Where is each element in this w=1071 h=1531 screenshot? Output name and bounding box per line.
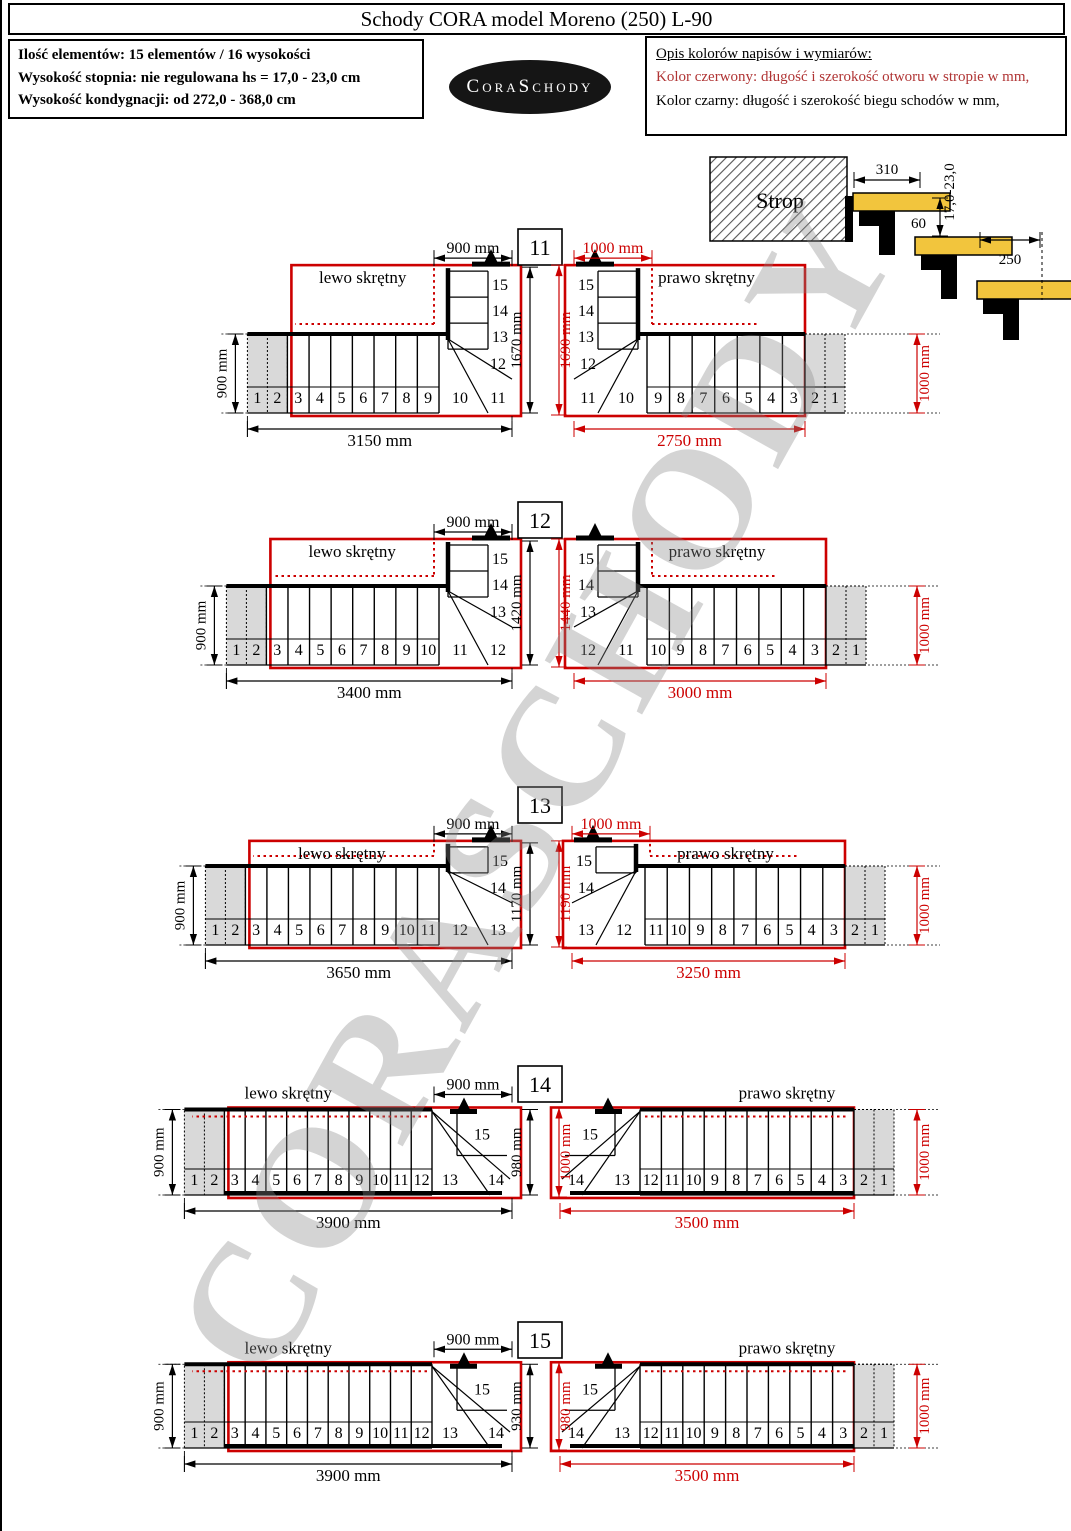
svg-text:14: 14 [492, 303, 508, 320]
svg-text:1000 mm: 1000 mm [558, 1123, 574, 1180]
svg-text:3400 mm: 3400 mm [337, 683, 402, 702]
svg-text:lewo skrętny: lewo skrętny [298, 844, 386, 863]
strop-section: Strop31017,0-23,060250 [710, 157, 1071, 340]
variant-15-right-diagram: 121211109876543151314prawo skrętny1000 m… [551, 1338, 940, 1485]
svg-text:12: 12 [529, 508, 551, 533]
svg-text:250: 250 [999, 252, 1022, 268]
svg-text:lewo skrętny: lewo skrętny [245, 1338, 333, 1357]
svg-text:13: 13 [529, 793, 551, 818]
svg-text:13: 13 [578, 922, 594, 939]
svg-text:5: 5 [797, 1172, 805, 1189]
svg-text:4: 4 [316, 390, 324, 407]
variant-13-right-diagram: 121110987654315141213prawo skrętny1000 m… [563, 816, 940, 982]
svg-text:4: 4 [818, 1172, 826, 1189]
svg-text:9: 9 [355, 1172, 363, 1189]
svg-text:900 mm: 900 mm [172, 880, 188, 930]
svg-text:15: 15 [492, 551, 508, 568]
svg-text:8: 8 [719, 922, 727, 939]
svg-text:5: 5 [272, 1425, 280, 1442]
svg-text:3: 3 [273, 642, 281, 659]
svg-text:11: 11 [452, 642, 467, 659]
svg-text:14: 14 [492, 577, 508, 594]
svg-text:6: 6 [775, 1172, 783, 1189]
svg-text:prawo skrętny: prawo skrętny [739, 1338, 836, 1357]
svg-text:3000 mm: 3000 mm [668, 683, 733, 702]
svg-text:2: 2 [851, 922, 859, 939]
svg-text:3250 mm: 3250 mm [676, 963, 741, 982]
svg-text:1190 mm: 1190 mm [558, 865, 574, 922]
svg-text:2: 2 [832, 642, 840, 659]
svg-text:10: 10 [650, 642, 666, 659]
svg-text:7: 7 [741, 922, 749, 939]
svg-text:900 mm: 900 mm [151, 1381, 167, 1431]
svg-text:11: 11 [664, 1425, 679, 1442]
variant-14-mid-dims: 980 mm1000 mm [509, 1108, 574, 1198]
svg-text:3: 3 [811, 642, 819, 659]
svg-text:11: 11 [393, 1172, 408, 1189]
svg-text:5: 5 [785, 922, 793, 939]
svg-text:1: 1 [190, 1425, 198, 1442]
title-bar: Schody CORA model Moreno (250) L-90 [8, 3, 1065, 35]
svg-text:12: 12 [643, 1172, 659, 1189]
svg-text:7: 7 [754, 1425, 762, 1442]
svg-text:1000 mm: 1000 mm [917, 1377, 933, 1434]
svg-text:13: 13 [442, 1172, 458, 1189]
svg-text:6: 6 [359, 390, 367, 407]
svg-text:7: 7 [699, 390, 707, 407]
variant-14-right-diagram: 121211109876543151314prawo skrętny1000 m… [551, 1084, 940, 1233]
svg-text:7: 7 [338, 922, 346, 939]
svg-text:11: 11 [529, 235, 550, 260]
svg-text:1: 1 [211, 922, 219, 939]
svg-text:15: 15 [492, 277, 508, 294]
svg-text:15: 15 [578, 277, 594, 294]
legend-box: Opis kolorów napisów i wymiarów: Kolor c… [645, 36, 1067, 136]
svg-text:2: 2 [860, 1172, 868, 1189]
svg-text:900 mm: 900 mm [447, 514, 500, 531]
svg-text:900 mm: 900 mm [447, 1331, 500, 1348]
svg-text:900 mm: 900 mm [447, 1077, 500, 1094]
svg-text:900 mm: 900 mm [447, 816, 500, 833]
svg-text:1: 1 [880, 1425, 888, 1442]
svg-text:5: 5 [797, 1425, 805, 1442]
svg-text:14: 14 [490, 880, 506, 897]
svg-text:8: 8 [732, 1425, 740, 1442]
svg-text:7: 7 [754, 1172, 762, 1189]
variant-13-row: 121110987654315141213lewo skrętny900 mm9… [2, 783, 1071, 1009]
svg-text:5: 5 [338, 390, 346, 407]
svg-text:10: 10 [399, 922, 415, 939]
page-title: Schody CORA model Moreno (250) L-90 [361, 7, 713, 31]
svg-text:60: 60 [911, 216, 926, 232]
svg-text:1: 1 [190, 1172, 198, 1189]
svg-text:5: 5 [316, 642, 324, 659]
svg-text:8: 8 [403, 390, 411, 407]
variant-15-mid-dims: 930 mm980 mm [509, 1362, 574, 1450]
svg-text:1000 mm: 1000 mm [917, 597, 933, 654]
variant-12-left-diagram: 121098765431514131112lewo skrętny900 mm9… [193, 514, 521, 702]
svg-text:6: 6 [293, 1172, 301, 1189]
svg-text:2750 mm: 2750 mm [657, 431, 722, 450]
svg-text:9: 9 [403, 642, 411, 659]
svg-text:2: 2 [252, 642, 260, 659]
variant-12-number-box: 12 [518, 502, 562, 538]
svg-text:5: 5 [745, 390, 753, 407]
svg-text:Strop: Strop [756, 188, 804, 213]
legend-black-line: Kolor czarny: długość i szerokość biegu … [656, 90, 1056, 113]
svg-text:6: 6 [338, 642, 346, 659]
svg-text:9: 9 [711, 1425, 719, 1442]
svg-text:12: 12 [580, 642, 596, 659]
svg-text:3650 mm: 3650 mm [326, 963, 391, 982]
svg-text:11: 11 [618, 642, 633, 659]
svg-text:15: 15 [474, 1381, 490, 1398]
svg-text:1: 1 [852, 642, 860, 659]
svg-text:lewo skrętny: lewo skrętny [319, 268, 407, 287]
svg-text:4: 4 [788, 642, 796, 659]
svg-text:prawo skrętny: prawo skrętny [677, 844, 774, 863]
svg-text:prawo skrętny: prawo skrętny [669, 542, 766, 561]
page: Schody CORA model Moreno (250) L-90 Iloś… [0, 0, 1071, 1531]
svg-text:3500 mm: 3500 mm [675, 1466, 740, 1485]
svg-text:1670 mm: 1670 mm [509, 311, 525, 368]
svg-text:9: 9 [654, 390, 662, 407]
svg-text:8: 8 [335, 1425, 343, 1442]
svg-text:5: 5 [272, 1172, 280, 1189]
svg-text:6: 6 [722, 390, 730, 407]
svg-text:3: 3 [231, 1425, 239, 1442]
variant-14-row: 121211109876543151314lewo skrętny900 mm9… [2, 1062, 1071, 1256]
svg-text:14: 14 [578, 880, 594, 897]
svg-text:10: 10 [452, 390, 468, 407]
svg-text:3: 3 [839, 1425, 847, 1442]
variant-15-left-diagram: 121211109876543151314lewo skrętny900 mm9… [151, 1331, 521, 1485]
svg-text:12: 12 [414, 1172, 430, 1189]
variant-12-row: 121098765431514131112lewo skrętny900 mm9… [2, 498, 1071, 730]
svg-text:3: 3 [252, 922, 260, 939]
svg-text:12: 12 [414, 1425, 430, 1442]
svg-text:prawo skrętny: prawo skrętny [739, 1084, 836, 1103]
svg-text:10: 10 [420, 642, 436, 659]
svg-text:15: 15 [582, 1381, 598, 1398]
svg-text:10: 10 [618, 390, 634, 407]
svg-text:1: 1 [831, 390, 839, 407]
svg-text:980 mm: 980 mm [558, 1381, 574, 1431]
svg-text:1440 mm: 1440 mm [558, 574, 574, 631]
svg-text:10: 10 [686, 1425, 702, 1442]
logo: CoraSchody [449, 60, 611, 114]
svg-text:11: 11 [490, 390, 505, 407]
svg-text:15: 15 [529, 1328, 551, 1353]
variant-14-number-box: 14 [518, 1066, 562, 1102]
svg-text:13: 13 [492, 329, 508, 346]
svg-text:980 mm: 980 mm [509, 1127, 525, 1177]
svg-text:14: 14 [488, 1425, 504, 1442]
svg-text:930 mm: 930 mm [509, 1381, 525, 1431]
svg-text:9: 9 [381, 922, 389, 939]
svg-text:12: 12 [643, 1425, 659, 1442]
svg-text:4: 4 [808, 922, 816, 939]
svg-text:13: 13 [614, 1172, 630, 1189]
svg-text:13: 13 [442, 1425, 458, 1442]
svg-text:6: 6 [775, 1425, 783, 1442]
svg-text:1170 mm: 1170 mm [509, 865, 525, 922]
svg-text:900 mm: 900 mm [151, 1127, 167, 1177]
svg-text:13: 13 [614, 1425, 630, 1442]
svg-text:1000 mm: 1000 mm [917, 1123, 933, 1180]
svg-text:8: 8 [677, 390, 685, 407]
svg-text:8: 8 [381, 642, 389, 659]
svg-text:9: 9 [697, 922, 705, 939]
svg-text:11: 11 [393, 1425, 408, 1442]
svg-text:11: 11 [648, 922, 663, 939]
svg-text:13: 13 [578, 329, 594, 346]
svg-text:1000 mm: 1000 mm [581, 816, 642, 833]
svg-text:3900 mm: 3900 mm [316, 1466, 381, 1485]
svg-text:7: 7 [381, 390, 389, 407]
svg-text:17,0-23,0: 17,0-23,0 [942, 163, 958, 221]
svg-text:900 mm: 900 mm [193, 600, 209, 650]
svg-text:5: 5 [766, 642, 774, 659]
svg-text:1420 mm: 1420 mm [509, 574, 525, 631]
svg-text:8: 8 [360, 922, 368, 939]
svg-text:3: 3 [839, 1172, 847, 1189]
svg-text:2: 2 [811, 390, 819, 407]
svg-text:4: 4 [252, 1425, 260, 1442]
svg-text:900 mm: 900 mm [214, 348, 230, 398]
svg-text:3900 mm: 3900 mm [316, 1213, 381, 1232]
svg-text:10: 10 [686, 1172, 702, 1189]
svg-text:7: 7 [721, 642, 729, 659]
variant-13-number-box: 13 [518, 787, 562, 823]
svg-text:3: 3 [231, 1172, 239, 1189]
svg-text:6: 6 [317, 922, 325, 939]
svg-text:7: 7 [359, 642, 367, 659]
svg-text:3: 3 [294, 390, 302, 407]
svg-text:9: 9 [424, 390, 432, 407]
svg-text:1: 1 [880, 1172, 888, 1189]
svg-text:310: 310 [876, 162, 899, 178]
variant-11-left-diagram: 129876543151413121011lewo skrętny900 mm9… [214, 240, 521, 450]
svg-text:3: 3 [830, 922, 838, 939]
svg-text:8: 8 [732, 1172, 740, 1189]
side-view-diagram: Strop31017,0-23,060250 [692, 140, 1071, 340]
variant-13-left-diagram: 121110987654315141213lewo skrętny900 mm9… [172, 816, 521, 982]
svg-text:10: 10 [372, 1172, 388, 1189]
svg-text:9: 9 [711, 1172, 719, 1189]
svg-text:4: 4 [295, 642, 303, 659]
svg-text:3150 mm: 3150 mm [347, 431, 412, 450]
svg-text:15: 15 [582, 1127, 598, 1144]
svg-text:15: 15 [578, 551, 594, 568]
svg-text:3: 3 [790, 390, 798, 407]
svg-text:14: 14 [578, 577, 594, 594]
svg-text:12: 12 [452, 922, 468, 939]
svg-text:15: 15 [474, 1127, 490, 1144]
svg-text:2: 2 [210, 1172, 218, 1189]
variant-15-row: 121211109876543151314lewo skrętny900 mm9… [2, 1318, 1071, 1516]
svg-text:9: 9 [355, 1425, 363, 1442]
legend-title: Opis kolorów napisów i wymiarów: [656, 43, 1056, 66]
svg-text:14: 14 [578, 303, 594, 320]
svg-text:lewo skrętny: lewo skrętny [245, 1084, 333, 1103]
svg-text:4: 4 [252, 1172, 260, 1189]
svg-text:4: 4 [767, 390, 775, 407]
svg-text:14: 14 [529, 1072, 551, 1097]
svg-text:1000 mm: 1000 mm [583, 240, 644, 257]
variant-11-number-box: 11 [518, 229, 562, 265]
svg-text:8: 8 [335, 1172, 343, 1189]
svg-text:11: 11 [580, 390, 595, 407]
svg-text:9: 9 [677, 642, 685, 659]
svg-text:5: 5 [295, 922, 303, 939]
svg-text:6: 6 [293, 1425, 301, 1442]
svg-text:4: 4 [274, 922, 282, 939]
svg-text:900 mm: 900 mm [447, 240, 500, 257]
variant-12-right-diagram: 121098765431514131112prawo skrętny1000 m… [565, 523, 940, 702]
svg-text:12: 12 [490, 642, 506, 659]
svg-text:11: 11 [664, 1172, 679, 1189]
svg-text:7: 7 [314, 1172, 322, 1189]
svg-text:2: 2 [860, 1425, 868, 1442]
svg-text:2: 2 [231, 922, 239, 939]
legend-red-line: Kolor czerwony: długość i szerokość otwo… [656, 66, 1056, 89]
info-line-storey-height: Wysokość kondygnacji: od 272,0 - 368,0 c… [18, 89, 414, 112]
svg-text:8: 8 [699, 642, 707, 659]
variant-15-number-box: 15 [518, 1322, 562, 1358]
svg-text:2: 2 [273, 390, 281, 407]
svg-text:1690 mm: 1690 mm [558, 311, 574, 368]
svg-text:12: 12 [616, 922, 632, 939]
svg-text:1: 1 [232, 642, 240, 659]
svg-text:11: 11 [421, 922, 436, 939]
svg-text:1000 mm: 1000 mm [917, 345, 933, 402]
info-line-elements: Ilość elementów: 15 elementów / 16 wysok… [18, 44, 414, 67]
svg-text:6: 6 [744, 642, 752, 659]
svg-text:3500 mm: 3500 mm [675, 1213, 740, 1232]
svg-text:14: 14 [488, 1172, 504, 1189]
svg-text:7: 7 [314, 1425, 322, 1442]
info-line-step-height: Wysokość stopnia: nie regulowana hs = 17… [18, 67, 414, 90]
svg-text:6: 6 [763, 922, 771, 939]
variant-14-left-diagram: 121211109876543151314lewo skrętny900 mm9… [151, 1077, 521, 1233]
svg-text:1: 1 [871, 922, 879, 939]
logo-text: CoraSchody [467, 76, 594, 97]
svg-text:13: 13 [490, 922, 506, 939]
svg-text:2: 2 [210, 1425, 218, 1442]
svg-text:10: 10 [372, 1425, 388, 1442]
svg-text:10: 10 [670, 922, 686, 939]
svg-text:15: 15 [576, 853, 592, 870]
svg-text:4: 4 [818, 1425, 826, 1442]
svg-text:15: 15 [492, 853, 508, 870]
svg-text:1000 mm: 1000 mm [917, 877, 933, 934]
info-box: Ilość elementów: 15 elementów / 16 wysok… [8, 39, 424, 119]
svg-text:1: 1 [253, 390, 261, 407]
svg-text:lewo skrętny: lewo skrętny [309, 542, 397, 561]
